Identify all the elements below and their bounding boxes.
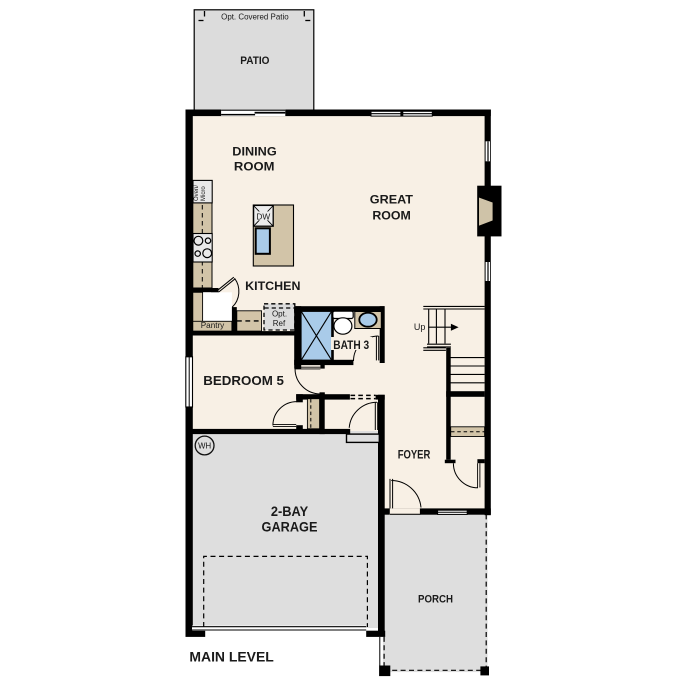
- svg-text:Opt.: Opt.: [272, 309, 287, 318]
- svg-text:PATIO: PATIO: [240, 55, 270, 67]
- svg-text:Micro: Micro: [201, 186, 207, 201]
- svg-text:GARAGE: GARAGE: [262, 519, 318, 534]
- svg-text:BEDROOM 5: BEDROOM 5: [203, 373, 284, 388]
- svg-text:Pantry: Pantry: [201, 320, 225, 330]
- svg-text:Oven/: Oven/: [194, 185, 200, 201]
- svg-text:BATH 3: BATH 3: [333, 340, 369, 352]
- svg-text:DW: DW: [256, 212, 270, 222]
- svg-text:WH: WH: [198, 442, 211, 451]
- svg-text:2-BAY: 2-BAY: [271, 504, 308, 519]
- svg-text:ROOM: ROOM: [372, 209, 411, 223]
- svg-text:MAIN LEVEL: MAIN LEVEL: [189, 650, 274, 666]
- svg-text:DINING: DINING: [232, 144, 276, 158]
- svg-text:Up: Up: [414, 322, 426, 332]
- svg-text:ROOM: ROOM: [234, 159, 275, 173]
- svg-text:Opt. Covered Patio: Opt. Covered Patio: [221, 12, 289, 22]
- svg-text:KITCHEN: KITCHEN: [245, 279, 300, 293]
- svg-text:Ref: Ref: [273, 319, 286, 328]
- svg-text:PORCH: PORCH: [418, 594, 453, 606]
- svg-text:GREAT: GREAT: [370, 193, 414, 207]
- svg-text:FOYER: FOYER: [398, 450, 431, 462]
